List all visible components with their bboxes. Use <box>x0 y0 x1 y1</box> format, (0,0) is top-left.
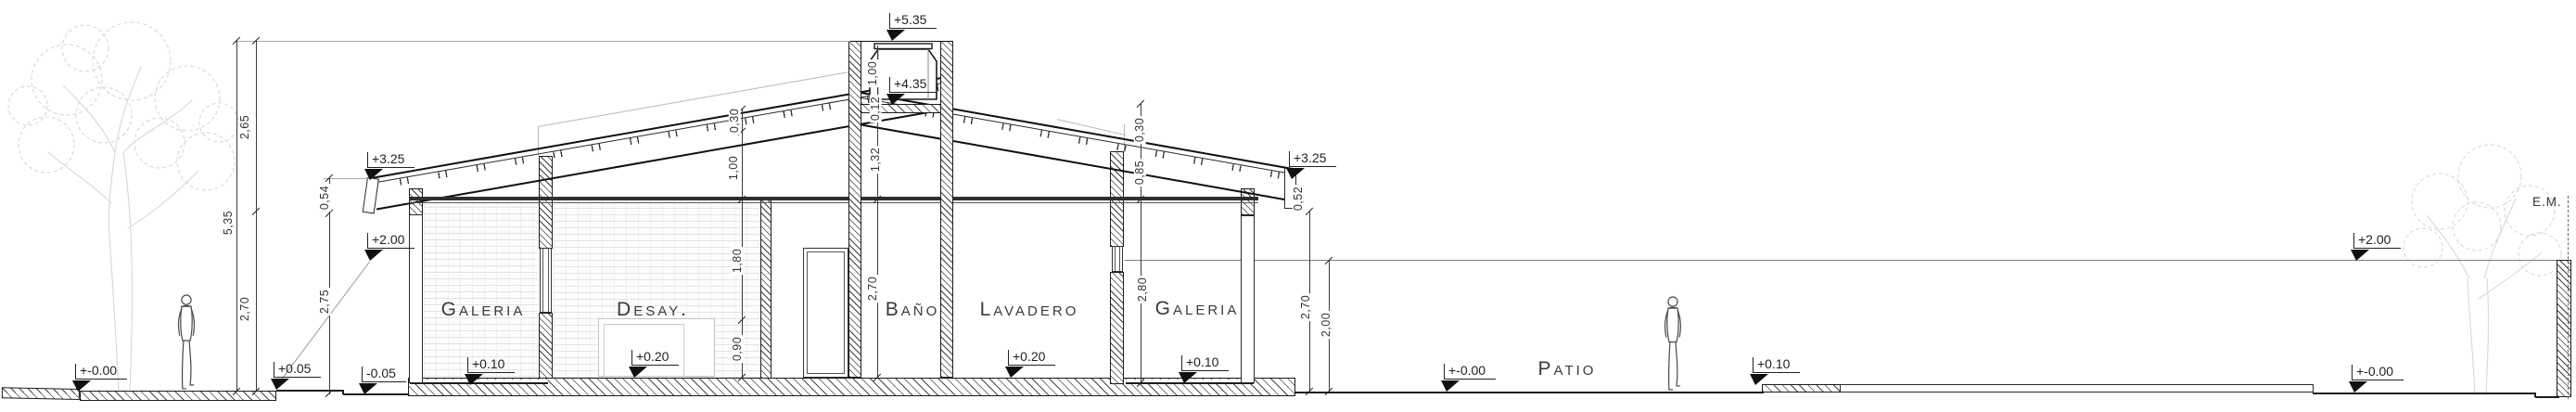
level-value: +0.05 <box>274 362 321 378</box>
fence-level-line <box>1125 260 2557 261</box>
boundary-wall-right <box>2557 260 2571 397</box>
patio-ground-line <box>1295 392 1764 393</box>
level-value: +5.35 <box>889 13 937 29</box>
level-marker-sidewalk: +-0.00 <box>72 380 91 392</box>
level-marker-desay-floor: +0.20 <box>629 367 647 378</box>
level-value: +4.35 <box>889 77 937 93</box>
level-marker-eave-right: +3.25 <box>1286 168 1305 179</box>
wall-galeria-desay-lower <box>539 313 553 379</box>
galeria-right-post <box>1241 215 1255 383</box>
dim-line-galeria-right <box>1141 104 1141 383</box>
level-value: +0.20 <box>1008 350 1055 366</box>
level-marker-patio-ground: +-0.00 <box>1441 380 1460 392</box>
room-label-galeria-left: Galeria <box>441 299 526 321</box>
level-triangle-icon <box>72 380 91 392</box>
dim-text: 1,00 <box>728 154 740 182</box>
sidewalk-slab <box>80 391 276 401</box>
level-value: +3.25 <box>1289 151 1336 167</box>
dim-text: 1,00 <box>867 59 879 87</box>
window-lavadero <box>1112 246 1123 272</box>
room-label-bano: Baño <box>886 299 940 321</box>
level-triangle-icon <box>886 30 905 41</box>
level-value: -0.05 <box>362 367 406 382</box>
tower-wall-left <box>848 41 861 378</box>
walkway-ramp-step <box>1762 384 1842 393</box>
level-triangle-icon <box>1005 367 1024 378</box>
wall-lavadero-galeria-lower <box>1110 272 1124 384</box>
level-triangle-icon <box>364 250 383 261</box>
tower-wall-right <box>940 41 953 378</box>
level-marker-galeria-right-floor: +0.10 <box>1179 372 1197 383</box>
room-label-lavadero: Lavadero <box>980 299 1079 321</box>
dim-text: 1,32 <box>870 146 882 174</box>
dim-line-total-left <box>236 41 237 392</box>
level-value: +2.00 <box>367 233 414 249</box>
dim-text: 1,80 <box>732 247 744 275</box>
dim-text: 0,90 <box>732 335 744 363</box>
level-triangle-icon <box>629 367 647 378</box>
level-value: +0.10 <box>1753 357 1800 373</box>
level-marker-fence-right: +2.00 <box>2351 250 2369 261</box>
street-slab <box>2 387 80 400</box>
room-label-desay: Desay. <box>617 299 689 321</box>
level-marker-wall-left: +2.00 <box>364 250 383 261</box>
wall-desay-passage <box>760 197 772 379</box>
dim-text: 0,54 <box>319 184 331 212</box>
tree-sketch-left <box>0 13 246 395</box>
ceiling-slab-line <box>409 197 1258 200</box>
dim-text: 2,75 <box>319 288 331 315</box>
level-triangle-icon <box>2349 381 2367 393</box>
level-value: +0.10 <box>467 357 515 373</box>
level-triangle-icon <box>886 94 905 105</box>
bano-door-elevation <box>803 248 848 378</box>
dim-text: 0,52 <box>1293 185 1305 212</box>
ceiling-soffit-line <box>409 202 1258 203</box>
dim-text: 2,70 <box>239 295 251 323</box>
dim-text: 2,65 <box>239 113 251 141</box>
property-line-label-em: E.M. <box>2532 195 2562 209</box>
level-marker-walkway: +0.10 <box>1750 374 1768 385</box>
person-figure-left <box>169 293 204 392</box>
level-triangle-icon <box>1750 374 1768 385</box>
level-marker-garden: -0.05 <box>359 383 377 394</box>
level-marker-entry-step: +0.05 <box>271 379 289 390</box>
ground-line-right <box>2313 393 2535 394</box>
level-triangle-icon <box>271 379 289 390</box>
level-value: +-0.00 <box>1444 364 1496 380</box>
level-triangle-icon <box>2351 250 2369 261</box>
level-triangle-icon <box>1286 168 1305 179</box>
bano-door-inner-frame <box>807 251 845 374</box>
level-triangle-icon <box>1441 380 1460 392</box>
dim-text: 0,85 <box>1134 159 1146 187</box>
dim-line-split-left <box>256 41 257 392</box>
window-galeria-desay <box>540 248 552 313</box>
window-glass-lines <box>542 249 549 312</box>
level-value: +2.00 <box>2353 233 2401 249</box>
dim-text: 2,70 <box>1300 293 1312 321</box>
level-triangle-icon <box>465 374 483 385</box>
dim-text: 2,70 <box>867 275 879 303</box>
dim-text: 0,12 <box>870 95 882 122</box>
level-marker-tank-base: +4.35 <box>886 94 905 105</box>
level-value: +-0.00 <box>75 364 127 380</box>
person-figure-patio <box>1655 295 1690 393</box>
extension-line-top <box>235 41 850 42</box>
dim-text: 0,30 <box>729 107 741 135</box>
medianera-dashdot-line <box>2568 196 2569 399</box>
walkway-slab <box>1840 384 2314 393</box>
level-marker-eave-left: +3.25 <box>364 169 383 180</box>
dim-text: 2,00 <box>1320 311 1333 339</box>
level-value: +0.20 <box>631 350 679 366</box>
room-label-patio: Patio <box>1538 358 1597 380</box>
level-value: +-0.00 <box>2352 365 2404 380</box>
level-triangle-icon <box>359 383 377 394</box>
architectural-section-drawing: 2,65 5,35 2,70 0,54 2,75 0,30 1,00 1,80 … <box>0 0 2576 412</box>
dim-text: 2,80 <box>1137 276 1149 303</box>
level-triangle-icon <box>364 169 383 180</box>
level-value: +0.10 <box>1181 355 1229 371</box>
window-lavadero-glass <box>1115 247 1120 271</box>
level-marker-ground-right: +-0.00 <box>2349 381 2367 393</box>
level-marker-tower-top: +5.35 <box>886 30 905 41</box>
level-triangle-icon <box>1179 372 1197 383</box>
dim-text: 0,30 <box>1134 116 1146 144</box>
room-label-galeria-right: Galeria <box>1155 298 1240 320</box>
dim-text: 5,35 <box>223 209 235 237</box>
level-marker-lavadero-floor: +0.20 <box>1005 367 1024 378</box>
level-value: +3.25 <box>367 152 414 168</box>
level-marker-galeria-left-floor: +0.10 <box>465 374 483 385</box>
